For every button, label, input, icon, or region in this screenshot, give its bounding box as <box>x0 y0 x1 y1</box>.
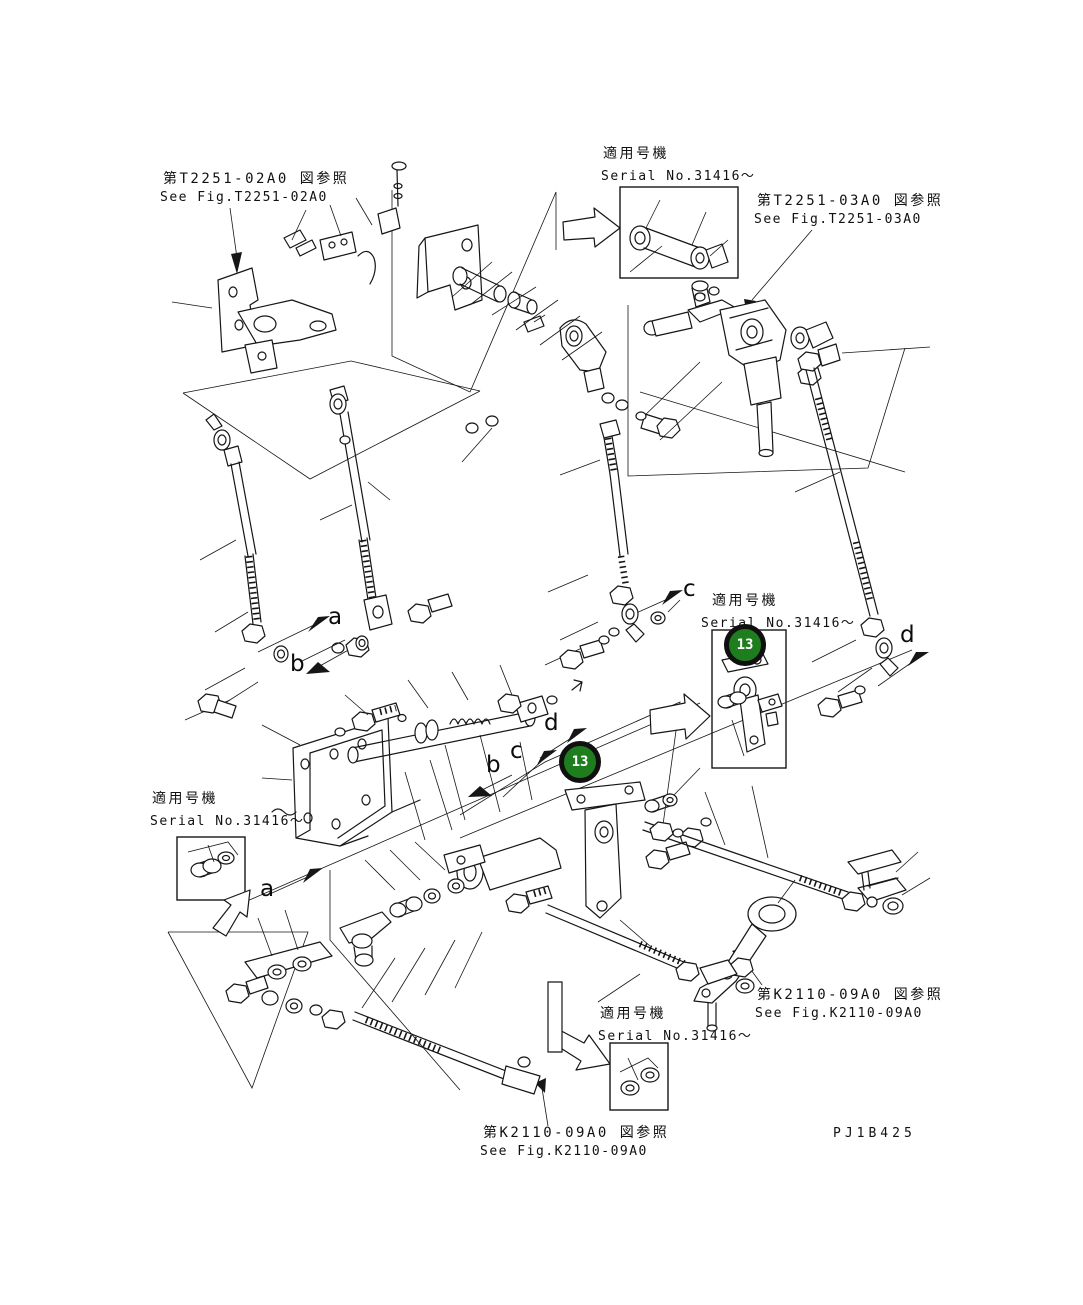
parts-diagram-page: 第T2251-02A0 図参照 See Fig.T2251-02A0 適用号機 … <box>0 0 1083 1305</box>
serial-note-bottom-jp: 適用号機 <box>600 1003 666 1023</box>
ref-k2110-09a0-bottom-jp: 第K2110-09A0 図参照 <box>483 1122 669 1142</box>
detail-box-bottom-content <box>620 1058 659 1095</box>
ref-t2251-03a0-en: See Fig.T2251-03A0 <box>754 212 922 227</box>
section-letter-b-top: b <box>290 651 305 677</box>
ref-t2251-02a0-jp: 第T2251-02A0 図参照 <box>163 168 349 188</box>
section-letter-a-top: a <box>328 604 342 630</box>
ref-k2110-09a0-right-en: See Fig.K2110-09A0 <box>755 1006 923 1021</box>
serial-note-top-en: Serial No.31416～ <box>601 165 755 184</box>
detail-box-right-content <box>718 652 782 756</box>
part-badge-13-right-box[interactable]: 13 <box>724 624 766 666</box>
hollow-arrow-top <box>563 208 620 247</box>
ref-k2110-09a0-bottom-en: See Fig.K2110-09A0 <box>480 1144 648 1159</box>
section-letter-a-bottom: a <box>260 876 274 902</box>
push-rod-right-long <box>795 352 898 717</box>
section-letter-c-right: c <box>683 576 696 602</box>
section-letter-d-right: d <box>900 622 915 648</box>
part-badge-13-center[interactable]: 13 <box>559 741 601 783</box>
center-lever-assemblies <box>340 735 711 966</box>
section-letter-b-mid: b <box>486 752 501 778</box>
section-letter-c-mid: c <box>510 738 523 764</box>
drawing-code: PJ1B425 <box>833 1126 916 1141</box>
ref-t2251-03a0-jp: 第T2251-03A0 図参照 <box>757 190 943 210</box>
assembly-top-center-bracket-link <box>417 225 680 462</box>
ref-k2110-09a0-right-jp: 第K2110-09A0 図参照 <box>757 984 943 1004</box>
ref-t2251-02a0-en: See Fig.T2251-02A0 <box>160 190 328 205</box>
serial-note-bottom-en: Serial No.31416～ <box>598 1025 752 1044</box>
detail-box-top-content <box>630 200 728 272</box>
bottom-rod-assembly <box>226 910 562 1094</box>
section-letter-d-mid: d <box>544 710 559 736</box>
serial-note-left-jp: 適用号機 <box>152 788 218 808</box>
hollow-arrow-bottom-left <box>213 890 250 936</box>
detail-box-left-content <box>188 842 238 877</box>
serial-note-right-jp: 適用号機 <box>712 590 778 610</box>
serial-note-right-en: Serial No.31416～ <box>701 612 855 631</box>
push-rod-left <box>185 414 288 720</box>
hollow-arrow-right <box>650 694 710 739</box>
serial-note-top-jp: 適用号機 <box>603 143 669 163</box>
serial-note-left-en: Serial No.31416～ <box>150 810 304 829</box>
push-rod-center-right <box>545 420 680 669</box>
